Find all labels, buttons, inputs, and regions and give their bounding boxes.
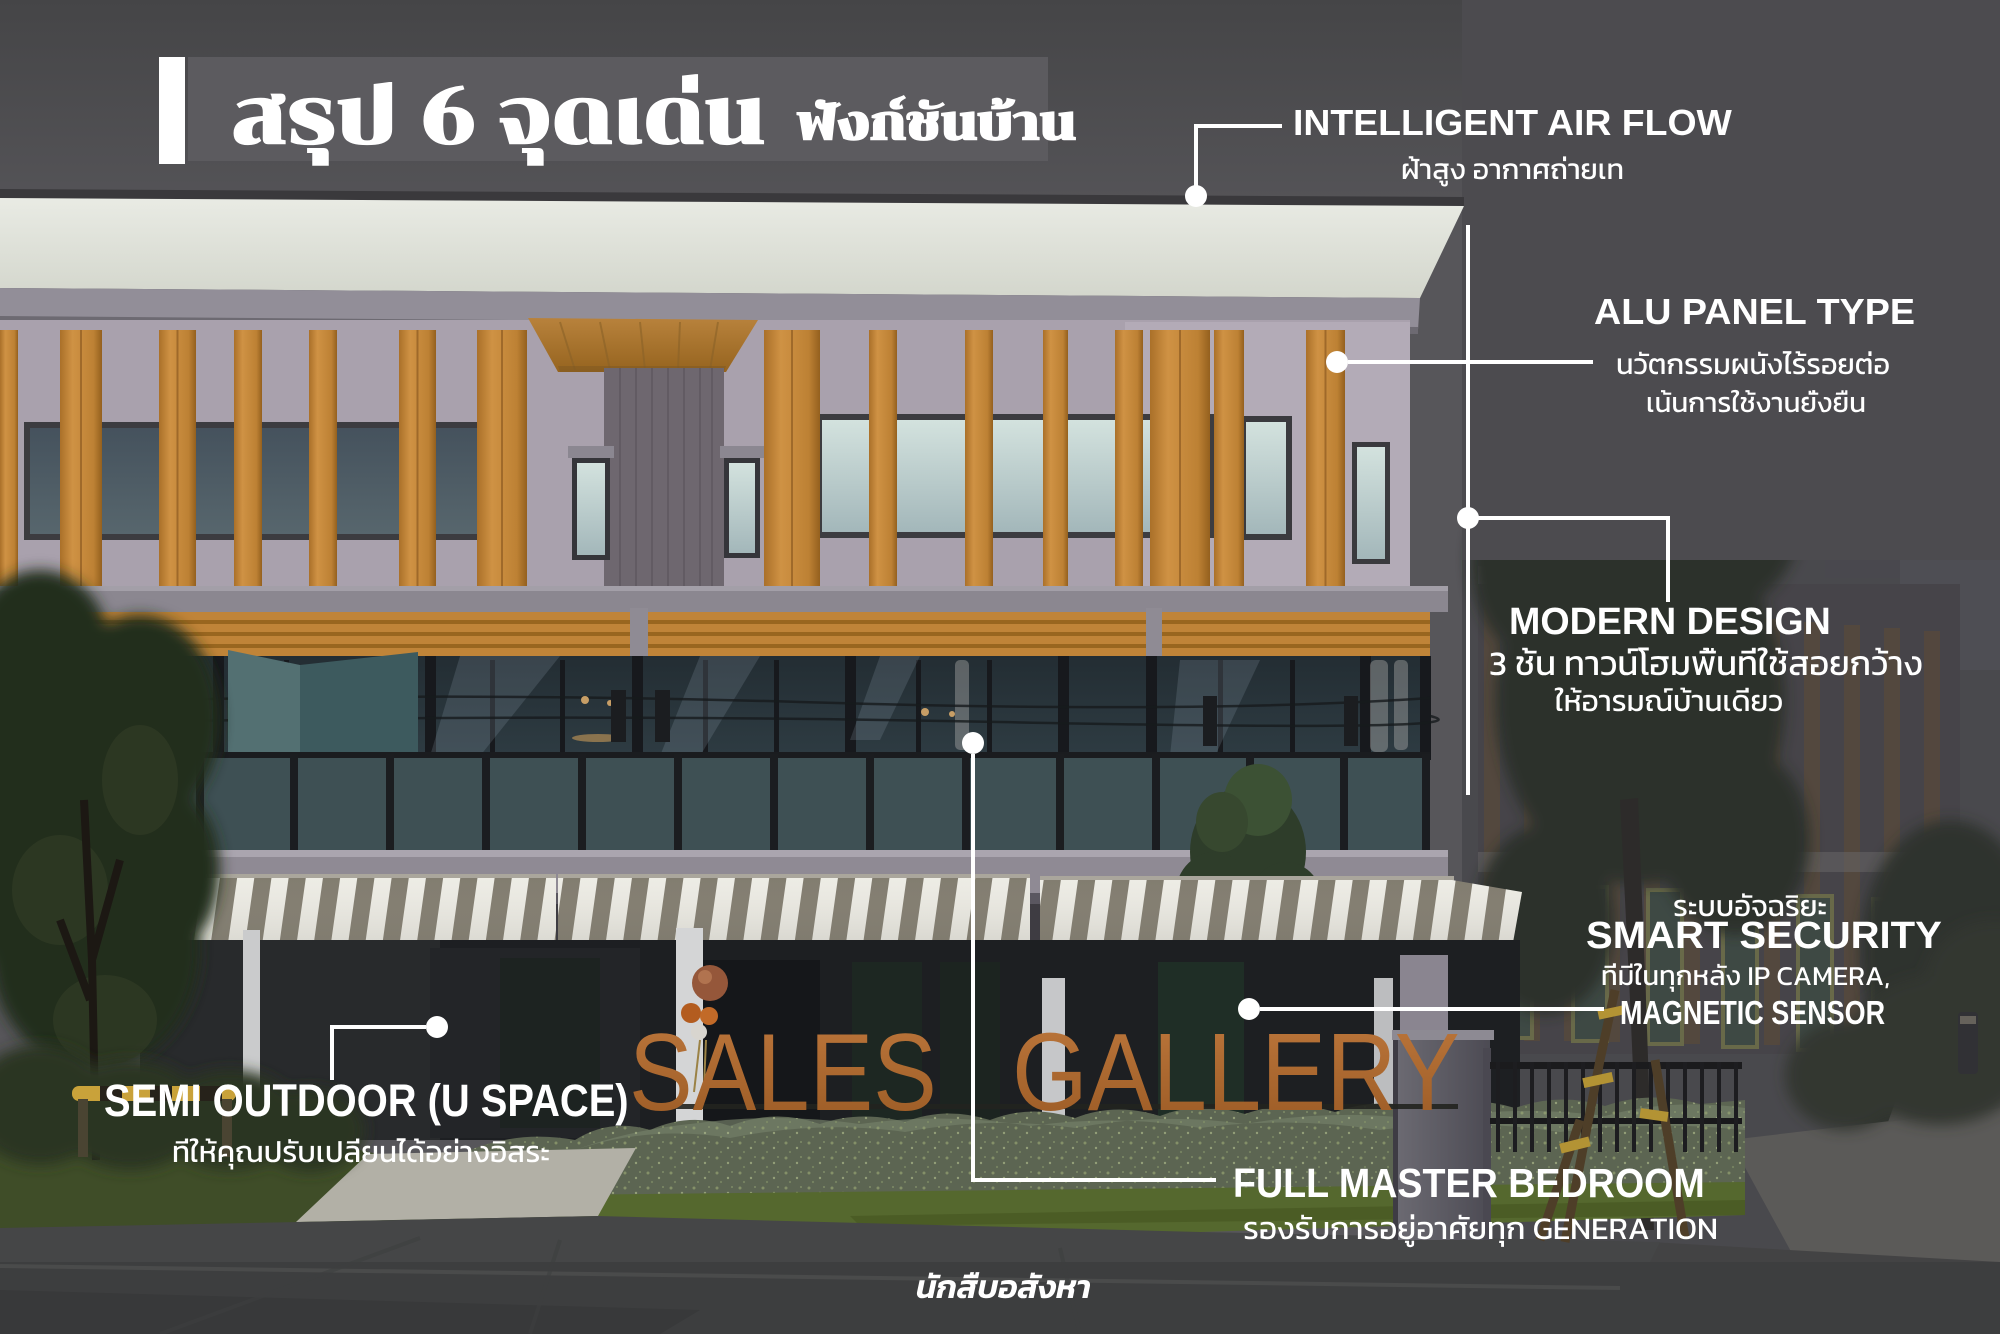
svg-text:SALES: SALES bbox=[629, 1011, 937, 1134]
svg-text:GALLERY: GALLERY bbox=[1012, 1012, 1460, 1135]
svg-text:SEMI OUTDOOR (U SPACE): SEMI OUTDOOR (U SPACE) bbox=[104, 1076, 629, 1127]
svg-text:INTELLIGENT AIR FLOW: INTELLIGENT AIR FLOW bbox=[1293, 103, 1732, 143]
svg-text:SMART SECURITY: SMART SECURITY bbox=[1586, 915, 1942, 957]
svg-text:MAGNETIC SENSOR: MAGNETIC SENSOR bbox=[1620, 996, 1885, 1032]
svg-text:MODERN DESIGN: MODERN DESIGN bbox=[1509, 601, 1831, 643]
svg-text:ALU PANEL TYPE: ALU PANEL TYPE bbox=[1594, 292, 1915, 332]
svg-text:FULL MASTER BEDROOM: FULL MASTER BEDROOM bbox=[1233, 1161, 1705, 1207]
